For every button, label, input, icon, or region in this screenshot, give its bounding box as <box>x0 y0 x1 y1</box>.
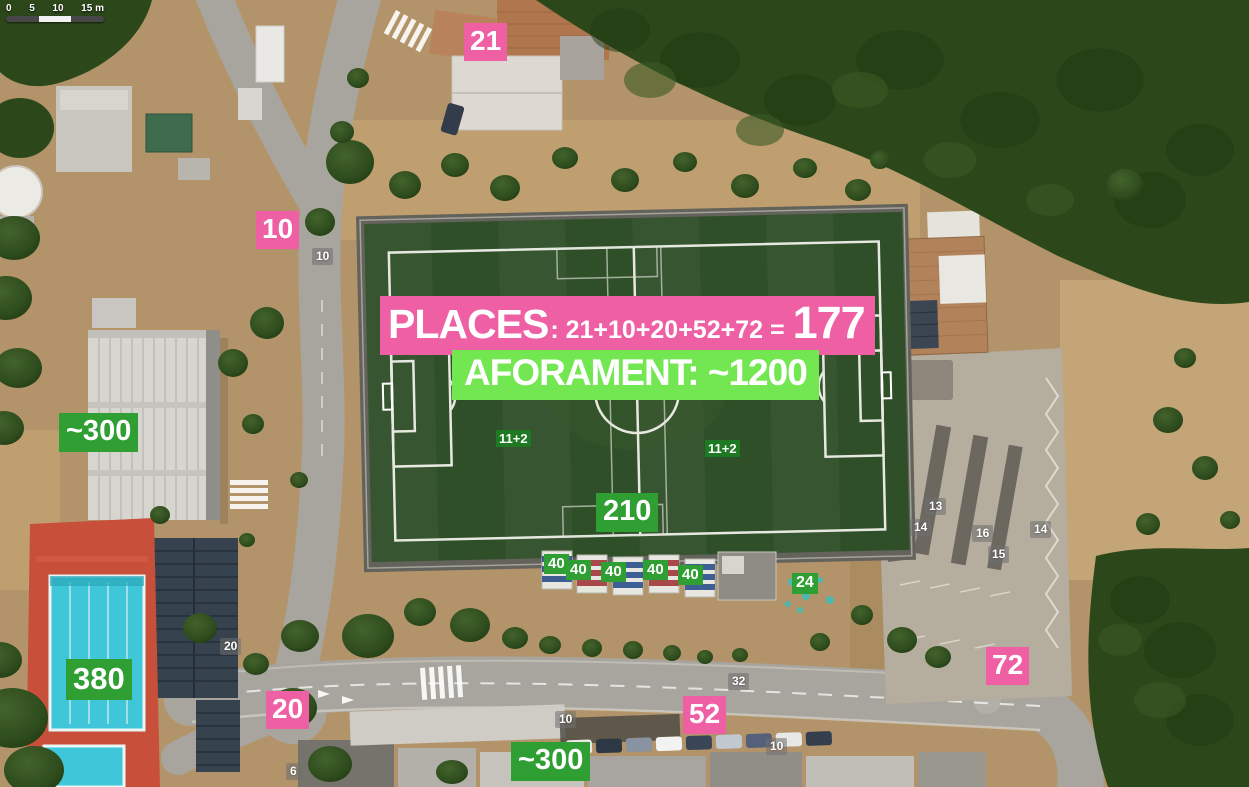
stall-number-15: 15 <box>988 546 1009 563</box>
street-number-10-c: 10 <box>766 738 787 755</box>
stand-40-label-3: 40 <box>601 562 626 582</box>
scale-tick-15m: 15 m <box>81 3 104 14</box>
zone-72-label: 72 <box>986 647 1029 685</box>
stand-40-label-5: 40 <box>678 565 703 585</box>
aforament-banner: AFORAMENT: ~1200 <box>452 350 819 400</box>
capacity-300-left-label: ~300 <box>59 413 138 452</box>
zone-21-label: 21 <box>464 23 507 61</box>
places-banner-formula: : 21+10+20+52+72 = <box>550 316 784 345</box>
capacity-380-pool-label: 380 <box>66 659 132 700</box>
capacity-210-pitch-label: 210 <box>596 493 658 532</box>
zone-10-label: 10 <box>256 211 299 249</box>
stall-number-14-b: 14 <box>1030 521 1051 538</box>
capacity-300-bottom-label: ~300 <box>511 742 590 781</box>
swimming-pool <box>26 518 160 787</box>
stand-40-label-4: 40 <box>643 560 668 580</box>
scale-track <box>6 16 104 22</box>
stand-40-label-2: 40 <box>566 560 591 580</box>
sports-hall-building <box>88 298 228 524</box>
street-number-20: 20 <box>220 638 241 655</box>
map-scale-bar: 0 5 10 15 m <box>6 3 104 22</box>
places-banner: PLACES : 21+10+20+52+72 = 177 <box>380 296 875 355</box>
stall-number-13: 13 <box>925 498 946 515</box>
zone-20-label: 20 <box>266 691 309 729</box>
street-number-32: 32 <box>728 673 749 690</box>
team-11plus2-right-label: 11+2 <box>705 440 740 457</box>
stand-40-label-1: 40 <box>544 554 569 574</box>
street-number-10-b: 10 <box>555 711 576 728</box>
scale-tick-5: 5 <box>29 3 35 14</box>
places-banner-total: 177 <box>793 297 865 349</box>
places-banner-title: PLACES <box>388 301 548 348</box>
scale-tick-10: 10 <box>52 3 63 14</box>
scale-tick-labels: 0 5 10 15 m <box>6 3 104 14</box>
team-11plus2-left-label: 11+2 <box>496 430 531 447</box>
stall-number-16: 16 <box>972 525 993 542</box>
street-number-10-a: 10 <box>312 248 333 265</box>
street-number-6: 6 <box>286 763 301 780</box>
aforament-banner-text: AFORAMENT: ~1200 <box>464 352 807 393</box>
scale-tick-0: 0 <box>6 3 12 14</box>
stall-number-14-a: 14 <box>910 519 931 536</box>
capacity-24-label: 24 <box>792 573 818 594</box>
annotated-aerial-screenshot: 0 5 10 15 m PLACES : 21+10+20+52+72 = 17… <box>0 0 1249 787</box>
zone-52-label: 52 <box>683 696 726 734</box>
